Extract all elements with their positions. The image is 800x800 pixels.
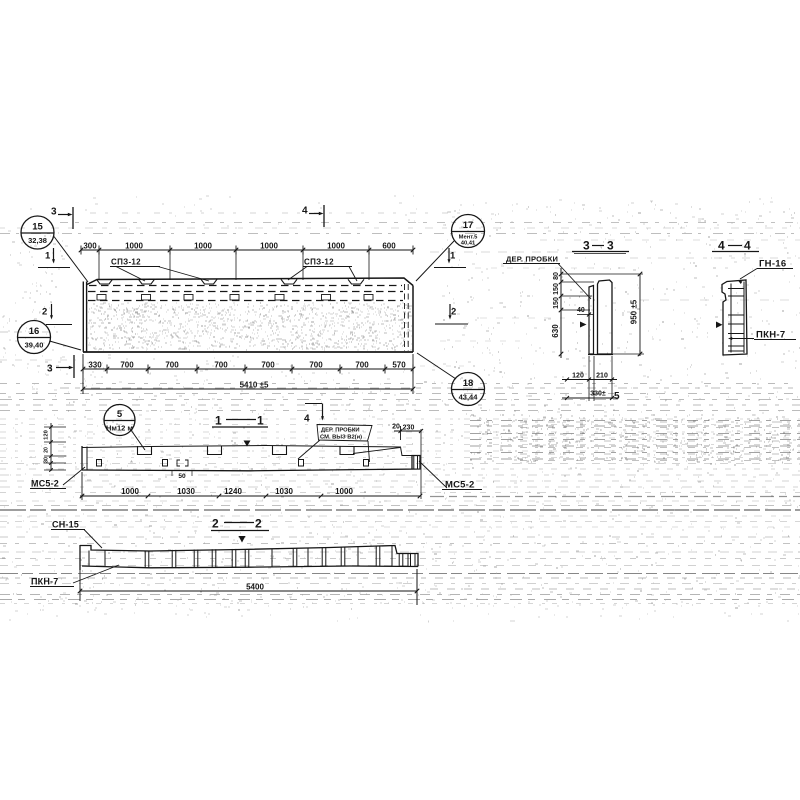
svg-text:950 ±5: 950 ±5 bbox=[630, 299, 639, 324]
svg-text:2: 2 bbox=[451, 307, 456, 318]
svg-text:3: 3 bbox=[47, 364, 53, 375]
svg-text:4: 4 bbox=[718, 239, 725, 253]
svg-text:150: 150 bbox=[553, 283, 560, 295]
svg-text:1240: 1240 bbox=[224, 487, 242, 496]
svg-text:20: 20 bbox=[392, 424, 400, 431]
svg-text:30: 30 bbox=[44, 457, 50, 463]
svg-text:1030: 1030 bbox=[275, 487, 293, 496]
svg-text:МС5-2: МС5-2 bbox=[31, 479, 59, 489]
svg-text:15: 15 bbox=[32, 222, 43, 233]
svg-text:4: 4 bbox=[744, 239, 751, 253]
svg-text:120: 120 bbox=[44, 430, 50, 440]
svg-text:700: 700 bbox=[309, 361, 323, 370]
svg-text:1000: 1000 bbox=[121, 487, 139, 496]
svg-text:1: 1 bbox=[450, 251, 456, 262]
svg-text:120: 120 bbox=[572, 373, 584, 380]
svg-text:Нм12 м: Нм12 м bbox=[106, 424, 133, 433]
svg-text:700: 700 bbox=[261, 361, 275, 370]
svg-text:МС5-2: МС5-2 bbox=[445, 480, 475, 491]
svg-text:2: 2 bbox=[212, 517, 219, 531]
svg-text:СМ. ВЫЗ В2(и): СМ. ВЫЗ В2(и) bbox=[320, 435, 362, 441]
svg-text:330±: 330± bbox=[590, 391, 606, 398]
svg-text:700: 700 bbox=[165, 361, 179, 370]
svg-text:1000: 1000 bbox=[194, 242, 212, 251]
svg-text:1000: 1000 bbox=[335, 487, 353, 496]
svg-text:1000: 1000 bbox=[260, 242, 278, 251]
svg-text:5410 ±5: 5410 ±5 bbox=[240, 381, 269, 390]
svg-text:18: 18 bbox=[463, 378, 474, 389]
svg-text:ПКН-7: ПКН-7 bbox=[756, 330, 785, 341]
svg-text:4: 4 bbox=[304, 414, 310, 425]
svg-text:СН-15: СН-15 bbox=[52, 520, 79, 530]
svg-text:СПЗ-12: СПЗ-12 bbox=[304, 258, 334, 267]
svg-text:300: 300 bbox=[83, 242, 97, 251]
svg-text:3: 3 bbox=[51, 207, 57, 218]
svg-text:330: 330 bbox=[88, 361, 102, 370]
svg-text:16: 16 bbox=[29, 326, 40, 337]
svg-text:700: 700 bbox=[355, 361, 369, 370]
svg-text:20: 20 bbox=[44, 447, 50, 453]
svg-text:2: 2 bbox=[255, 517, 262, 531]
svg-text:40: 40 bbox=[577, 307, 585, 314]
svg-text:700: 700 bbox=[214, 361, 228, 370]
svg-text:230: 230 bbox=[403, 425, 415, 432]
svg-text:700: 700 bbox=[120, 361, 134, 370]
svg-text:ДЕР. ПРОБКИ: ДЕР. ПРОБКИ bbox=[321, 428, 360, 434]
svg-text:5400: 5400 bbox=[246, 583, 264, 592]
svg-text:43,44: 43,44 bbox=[459, 393, 479, 402]
svg-text:3: 3 bbox=[583, 239, 590, 253]
svg-text:39,40: 39,40 bbox=[25, 341, 44, 350]
svg-text:1: 1 bbox=[45, 251, 51, 262]
svg-text:4: 4 bbox=[302, 206, 308, 217]
svg-text:1030: 1030 bbox=[177, 487, 195, 496]
svg-text:32,38: 32,38 bbox=[28, 236, 47, 245]
svg-text:630: 630 bbox=[551, 324, 560, 338]
svg-text:50: 50 bbox=[178, 473, 186, 480]
svg-text:ДЕР. ПРОБКИ: ДЕР. ПРОБКИ bbox=[506, 255, 558, 264]
svg-text:2: 2 bbox=[42, 307, 47, 318]
svg-text:1000: 1000 bbox=[327, 242, 345, 251]
svg-text:600: 600 bbox=[382, 242, 396, 251]
svg-text:80: 80 bbox=[553, 272, 560, 280]
svg-text:570: 570 bbox=[392, 361, 406, 370]
svg-text:150: 150 bbox=[553, 297, 560, 309]
svg-text:210: 210 bbox=[596, 373, 608, 380]
svg-text:ГН-16: ГН-16 bbox=[759, 259, 786, 270]
svg-text:1: 1 bbox=[257, 414, 264, 428]
svg-text:17: 17 bbox=[463, 220, 474, 231]
svg-text:1000: 1000 bbox=[125, 242, 143, 251]
svg-text:5: 5 bbox=[614, 391, 620, 402]
svg-text:СПЗ-12: СПЗ-12 bbox=[111, 258, 141, 267]
svg-text:3: 3 bbox=[607, 239, 614, 253]
svg-text:1: 1 bbox=[215, 414, 222, 428]
svg-text:40,41: 40,41 bbox=[461, 241, 476, 247]
svg-text:5: 5 bbox=[117, 409, 123, 420]
svg-text:ПКН-7: ПКН-7 bbox=[31, 577, 58, 587]
